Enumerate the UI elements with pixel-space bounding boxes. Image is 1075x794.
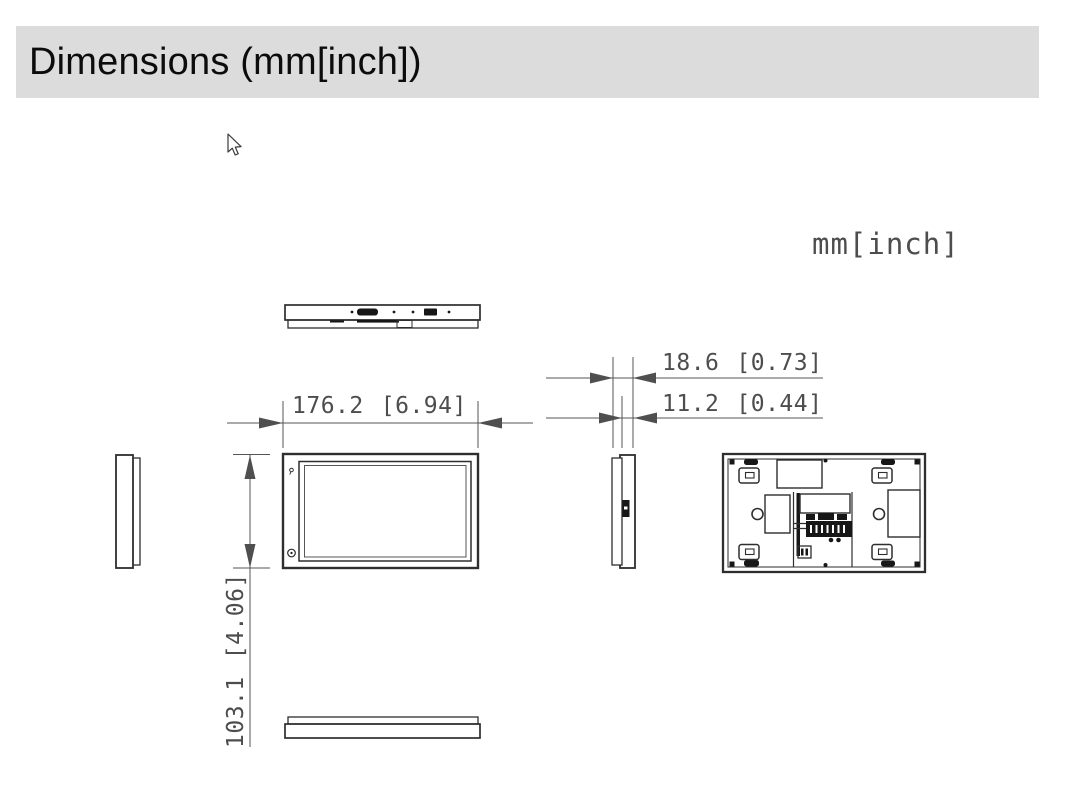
front-camera-icon: [290, 468, 294, 472]
top-plate-slot: [357, 320, 399, 323]
top-mic-hole: [351, 311, 354, 314]
front-screen-display: [305, 466, 467, 558]
back-right-rect: [888, 490, 920, 537]
slot-top-right: [881, 459, 895, 465]
keyhole-mount-bottom-right: [872, 545, 892, 560]
slot-bottom-left: [744, 560, 759, 567]
terminal-cover: [800, 494, 850, 513]
screw-top-center: [824, 459, 828, 463]
top-view-body: [285, 305, 480, 320]
left-side-front-plate: [116, 455, 133, 568]
dimensions-page: Dimensions (mm[inch]) mm[inch] 176.2[6.9…: [0, 0, 1075, 794]
depth-dimensions: [546, 357, 823, 448]
back-right-hole: [874, 509, 885, 520]
arrowhead-left-icon: [633, 373, 656, 384]
right-side-view: [612, 455, 635, 568]
left-side-view: [116, 455, 140, 568]
front-screen-bezel: [299, 462, 471, 562]
top-hole: [448, 311, 451, 314]
back-view: [723, 454, 925, 572]
arrowhead-right-icon: [259, 418, 283, 429]
arrowhead-right-icon: [599, 413, 622, 424]
dimension-diagram: [0, 0, 1075, 794]
screw-top-right: [915, 460, 920, 465]
back-top-box: [777, 460, 822, 488]
screw-bottom-center: [824, 563, 828, 567]
bottom-view: [285, 717, 480, 738]
top-plate-notch: [330, 321, 344, 323]
front-camera-tail: [290, 472, 291, 475]
mouse-cursor-icon: [228, 134, 241, 155]
back-left-hole: [752, 509, 763, 520]
height-dimension: [233, 455, 270, 748]
width-dimension: [227, 401, 533, 448]
card-slot-notch: [624, 507, 628, 510]
terminal-block: [806, 521, 852, 537]
arrowhead-left-icon: [634, 413, 657, 424]
screw-bottom-left: [730, 562, 735, 567]
bottom-view-body: [285, 724, 480, 738]
front-view: [283, 454, 478, 568]
top-port: [424, 309, 437, 316]
front-button-dot: [290, 552, 292, 554]
keyhole-mount-bottom-left: [739, 545, 759, 560]
right-side-front-plate: [612, 458, 622, 565]
slot-bottom-right: [881, 561, 895, 567]
connector: [806, 514, 815, 520]
top-hole: [412, 311, 415, 314]
connector: [818, 513, 834, 520]
back-left-rect: [765, 495, 790, 533]
top-hole: [393, 311, 396, 314]
terminal-lug: [836, 538, 841, 543]
arrowhead-up-icon: [245, 455, 256, 479]
screw-bottom-right: [915, 562, 920, 567]
arrowhead-down-icon: [245, 544, 256, 568]
slot-top-left: [744, 459, 758, 465]
connector: [837, 514, 847, 520]
keyhole-mount-top-right: [872, 468, 892, 483]
terminal-lug: [829, 538, 834, 543]
top-view: [285, 305, 480, 328]
top-slot: [357, 309, 378, 316]
front-view-body: [283, 454, 478, 568]
bottom-view-plate: [288, 717, 478, 724]
screw-top-left: [730, 460, 735, 465]
keyhole-mount-top-left: [739, 468, 759, 483]
arrowhead-left-icon: [478, 418, 502, 429]
top-plate-box: [397, 321, 412, 328]
arrowhead-right-icon: [590, 373, 613, 384]
